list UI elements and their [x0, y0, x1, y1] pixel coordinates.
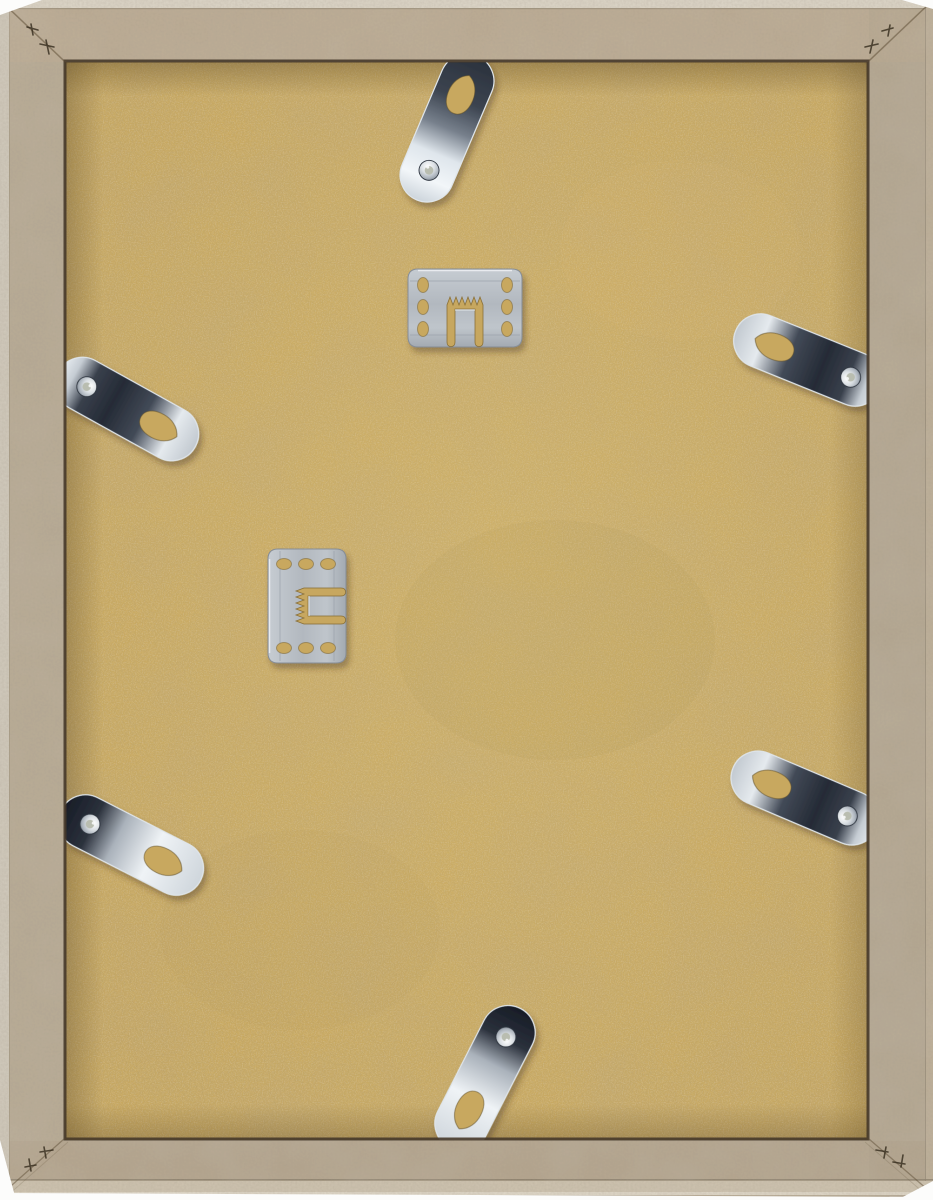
frame-left-edge-bevel	[0, 0, 9, 1200]
frame-top-groove	[0, 8, 933, 9]
photo-canvas	[0, 0, 933, 1200]
backing-board	[65, 62, 868, 1140]
seam-right	[867, 60, 870, 1141]
frame-left-groove	[9, 0, 10, 1200]
frame-right-tint	[869, 0, 925, 1200]
frame-back-photo	[0, 0, 933, 1200]
sawtooth-hanger-top	[408, 269, 522, 347]
frame-right-edge-bevel	[926, 0, 933, 1200]
sawtooth-hanger-left	[268, 549, 346, 663]
seam-top	[64, 60, 870, 63]
frame-top-tint	[0, 9, 933, 62]
seam-bottom	[64, 1138, 870, 1141]
frame-bottom-tint	[0, 1141, 933, 1179]
frame-bottom-groove	[0, 1179, 933, 1181]
frame-top-edge-bevel	[0, 0, 933, 8]
seam-left	[64, 60, 67, 1141]
